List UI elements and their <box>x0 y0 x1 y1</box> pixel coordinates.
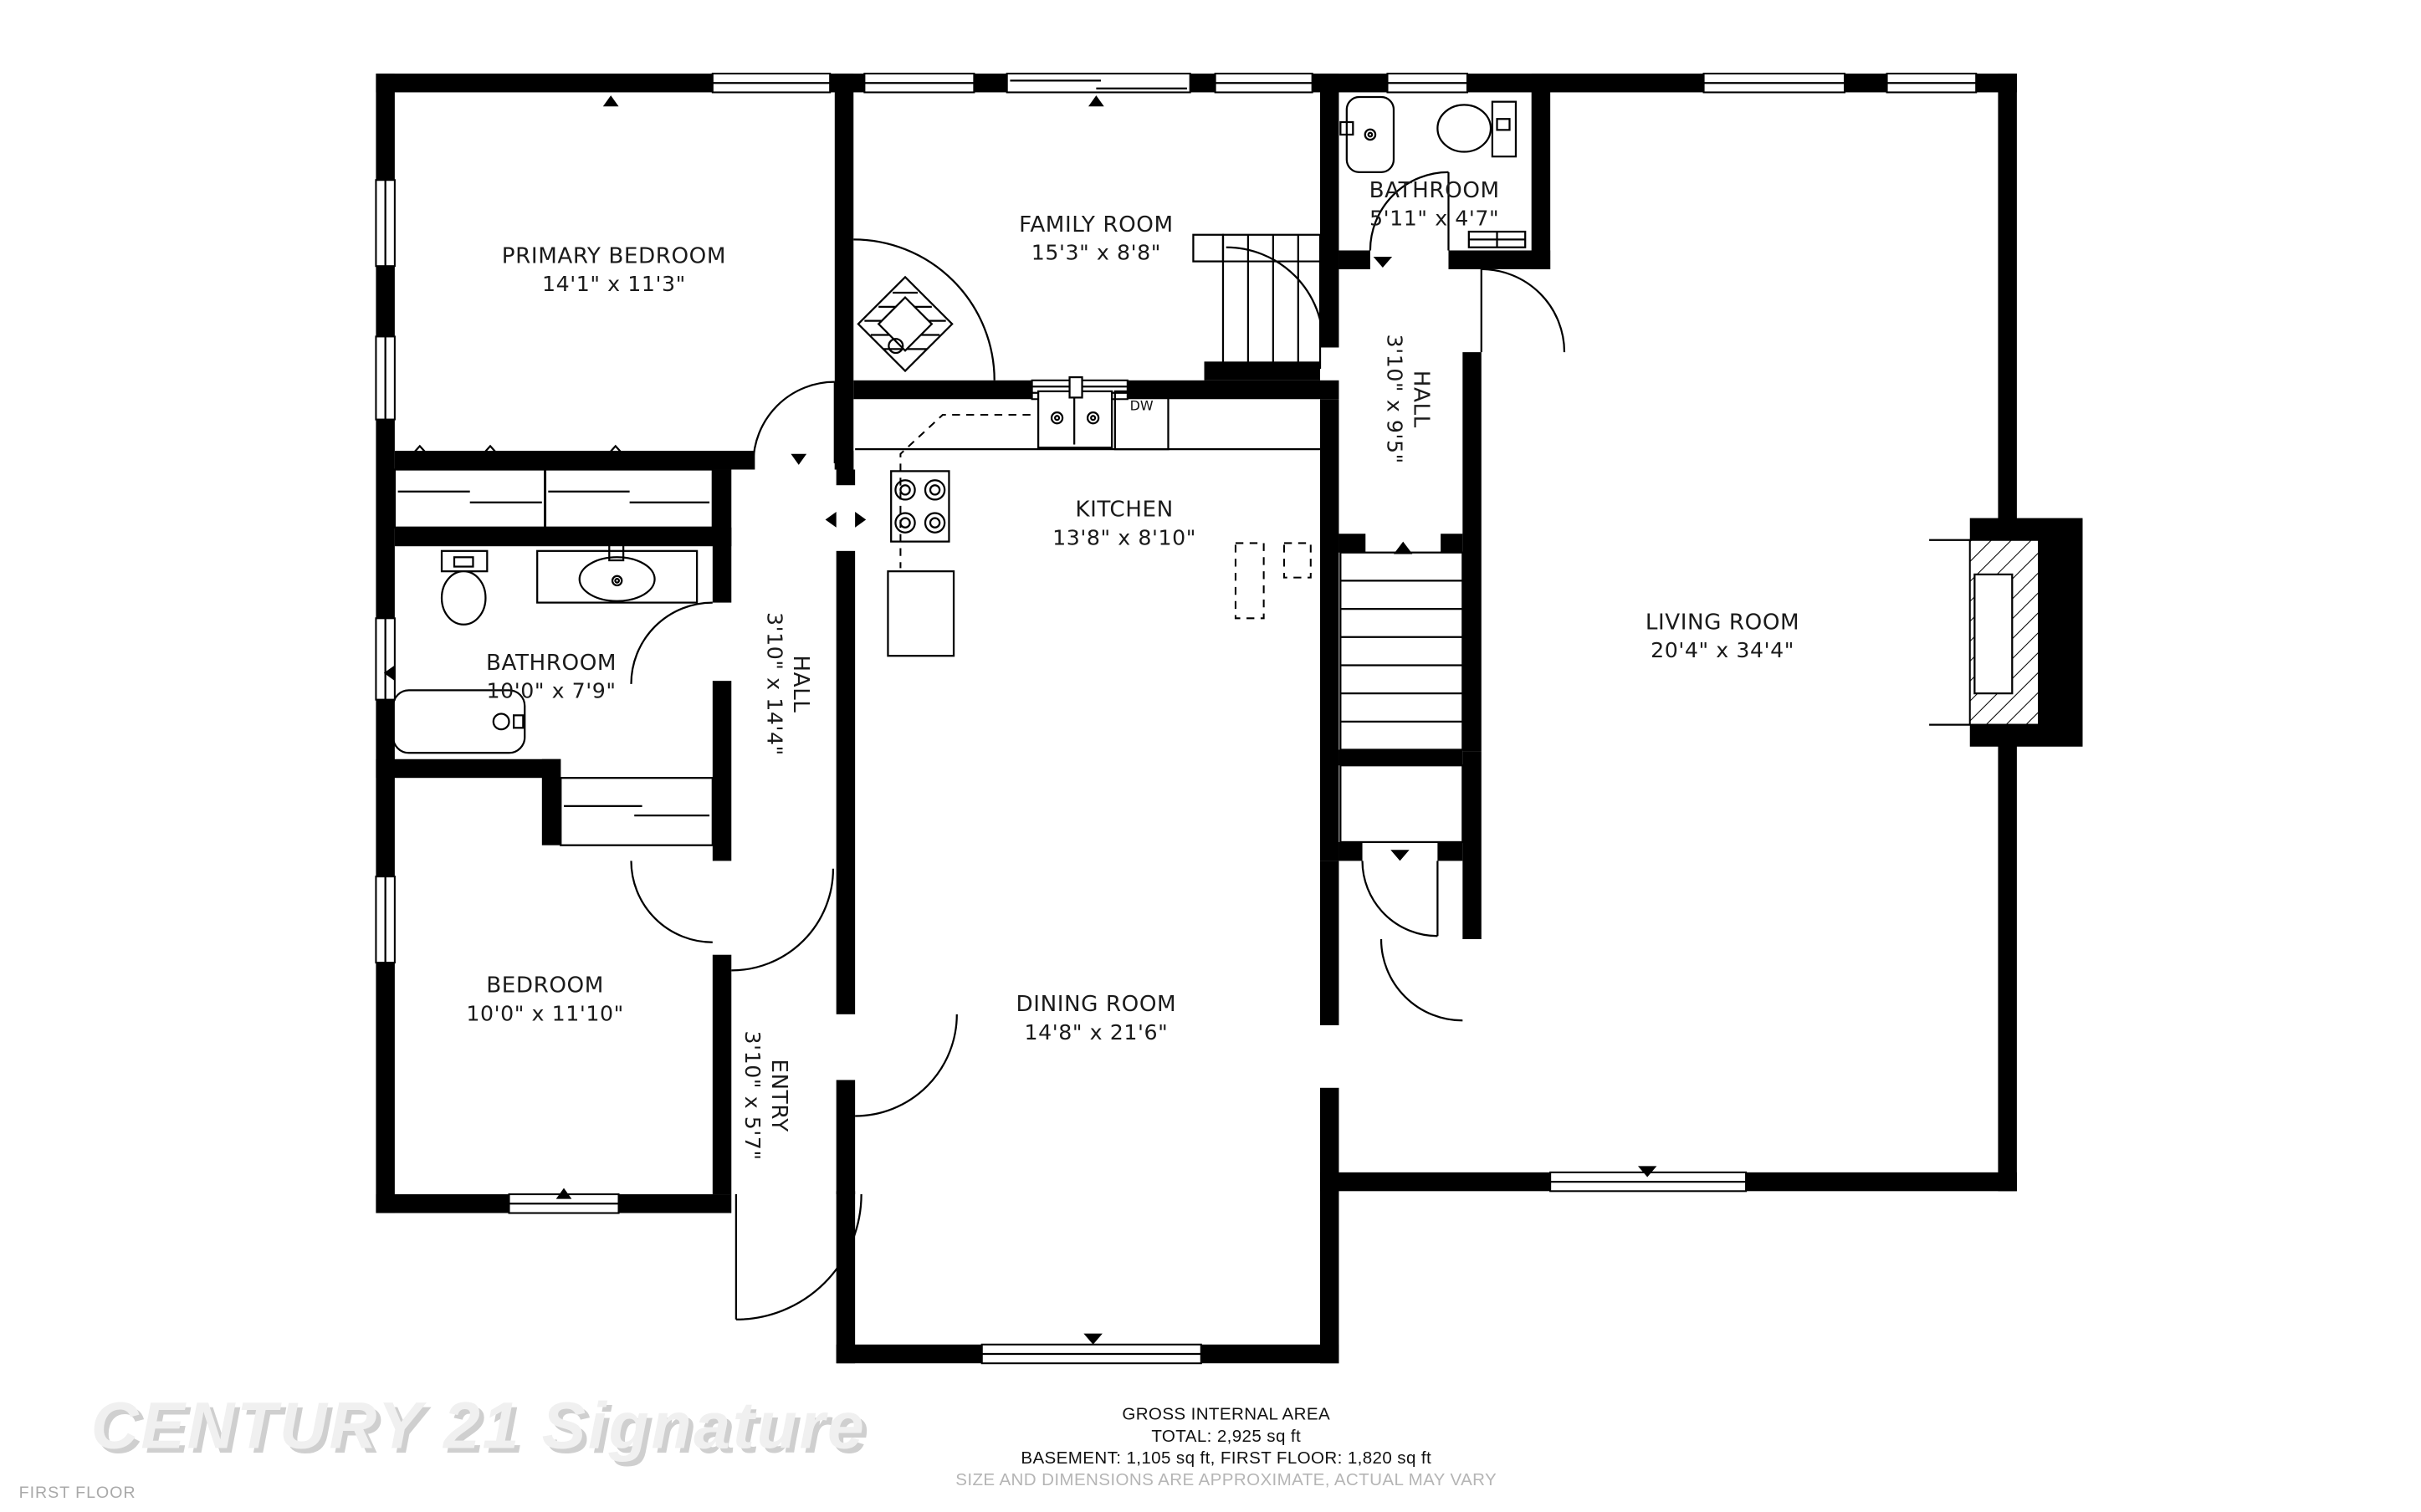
family-room-name: FAMILY ROOM <box>1019 212 1174 238</box>
fireplace-icon <box>1929 518 2082 747</box>
entry-name: ENTRY <box>766 1059 791 1132</box>
dishwasher-icon: DW <box>1115 391 1169 449</box>
room-label-upper-bathroom: BATHROOM 5'11" x 4'7" <box>1369 178 1500 231</box>
living-room-dims: 20'4" x 34'4" <box>1651 638 1794 662</box>
room-label-kitchen: KITCHEN 13'8" x 8'10" <box>1052 498 1196 550</box>
kitchen-name: KITCHEN <box>1075 498 1173 523</box>
upper-hall-dims: 3'10" x 9'5" <box>1382 335 1406 464</box>
room-label-family-room: FAMILY ROOM 15'3" x 8'8" <box>1019 212 1174 265</box>
living-room-name: LIVING ROOM <box>1646 610 1799 635</box>
primary-bedroom-dims: 14'1" x 11'3" <box>542 272 686 296</box>
bedroom-dims: 10'0" x 11'10" <box>466 1001 623 1025</box>
kitchen-dims: 13'8" x 8'10" <box>1052 525 1196 549</box>
room-label-living-room: LIVING ROOM 20'4" x 34'4" <box>1646 610 1799 662</box>
main-hall-name: HALL <box>788 655 813 713</box>
floor-label: FIRST FLOOR <box>19 1484 136 1502</box>
main-hall-dims: 3'10" x 14'4" <box>762 612 786 756</box>
dining-room-name: DINING ROOM <box>1016 992 1177 1017</box>
room-label-upper-hall: HALL 3'10" x 9'5" <box>1382 335 1433 464</box>
upper-toilet-icon <box>1437 102 1516 157</box>
upper-bathroom-name: BATHROOM <box>1369 178 1500 203</box>
footer-total: TOTAL: 2,925 sq ft <box>1151 1427 1301 1446</box>
family-room-dims: 15'3" x 8'8" <box>1031 241 1161 265</box>
upper-bathroom-dims: 5'11" x 4'7" <box>1369 207 1499 231</box>
main-stairs <box>1340 553 1462 842</box>
room-label-bedroom: BEDROOM 10'0" x 11'10" <box>466 973 623 1026</box>
upper-hall-name: HALL <box>1408 370 1433 428</box>
watermark: CENTURY 21 Signature CENTURY 21 Signatur… <box>91 1388 871 1467</box>
room-label-dining-room: DINING ROOM 14'8" x 21'6" <box>1016 992 1177 1045</box>
main-bathroom-dims: 10'0" x 7'9" <box>486 679 616 703</box>
main-bathroom-fixtures <box>393 542 697 753</box>
primary-bedroom-name: PRIMARY BEDROOM <box>502 243 726 268</box>
footer-breakdown: BASEMENT: 1,105 sq ft, FIRST FLOOR: 1,82… <box>1021 1448 1431 1468</box>
dishwasher-label: DW <box>1130 397 1154 413</box>
dining-room-dims: 14'8" x 21'6" <box>1024 1020 1168 1045</box>
footer: GROSS INTERNAL AREA TOTAL: 2,925 sq ft B… <box>955 1405 1497 1490</box>
entry-dims: 3'10" x 5'7" <box>740 1031 765 1161</box>
main-bathroom-name: BATHROOM <box>486 651 617 676</box>
room-label-primary-bedroom: PRIMARY BEDROOM 14'1" x 11'3" <box>502 243 726 296</box>
wood-stove-icon <box>853 239 994 380</box>
basement-stairs <box>1193 235 1320 368</box>
room-label-main-bathroom: BATHROOM 10'0" x 7'9" <box>486 651 617 703</box>
room-label-entry: ENTRY 3'10" x 5'7" <box>740 1031 791 1161</box>
watermark-text: CENTURY 21 Signature <box>91 1388 867 1462</box>
counter-cabinet <box>888 571 954 656</box>
bedroom-name: BEDROOM <box>486 973 604 999</box>
vanity-sink-icon <box>537 542 697 603</box>
floor-plan: DW <box>0 0 2421 1512</box>
room-label-main-hall: HALL 3'10" x 14'4" <box>762 612 813 756</box>
floor-plan-page: DW <box>0 0 2421 1512</box>
toilet-icon <box>442 551 487 625</box>
footer-title: GROSS INTERNAL AREA <box>1122 1405 1330 1424</box>
upper-sink-icon <box>1340 97 1394 172</box>
interior-walls <box>376 74 1550 1194</box>
room-labels: PRIMARY BEDROOM 14'1" x 11'3" FAMILY ROO… <box>466 178 1799 1161</box>
radiator-icon <box>1469 232 1525 248</box>
footer-disclaimer: SIZE AND DIMENSIONS ARE APPROXIMATE, ACT… <box>955 1470 1497 1489</box>
